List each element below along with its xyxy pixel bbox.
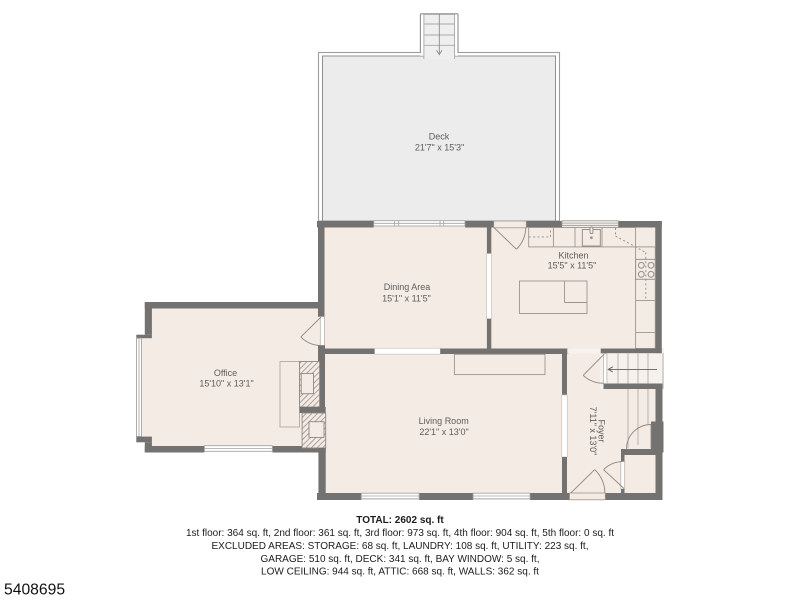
svg-text:1st floor: 364 sq. ft, 2nd flo: 1st floor: 364 sq. ft, 2nd floor: 361 sq… [186, 528, 614, 539]
svg-text:15'1" x 11'5": 15'1" x 11'5" [382, 294, 431, 304]
svg-text:Deck: Deck [429, 132, 450, 142]
svg-text:LOW CEILING: 944 sq. ft, ATTIC: LOW CEILING: 944 sq. ft, ATTIC: 668 sq. … [261, 567, 539, 578]
svg-text:EXCLUDED AREAS: STORAGE: 68 sq: EXCLUDED AREAS: STORAGE: 68 sq. ft, LAUN… [211, 541, 588, 552]
svg-text:Kitchen: Kitchen [558, 251, 588, 261]
svg-text:21'7" x 15'3": 21'7" x 15'3" [415, 143, 464, 153]
svg-text:Living Room: Living Room [419, 416, 469, 426]
svg-text:22'1" x 13'0": 22'1" x 13'0" [419, 427, 468, 437]
svg-text:GARAGE: 510 sq. ft, DECK: 341: GARAGE: 510 sq. ft, DECK: 341 sq. ft, BA… [261, 554, 540, 565]
svg-text:15'5" x 11'5": 15'5" x 11'5" [548, 260, 597, 270]
svg-text:TOTAL: 2602 sq. ft: TOTAL: 2602 sq. ft [356, 515, 444, 526]
svg-text:15'10" x 13'1": 15'10" x 13'1" [199, 378, 253, 388]
svg-text:7'11" x 13'0": 7'11" x 13'0" [588, 407, 598, 456]
svg-text:Dining Area: Dining Area [384, 282, 431, 292]
svg-text:Office: Office [214, 368, 237, 378]
svg-text:5408695: 5408695 [4, 582, 65, 599]
